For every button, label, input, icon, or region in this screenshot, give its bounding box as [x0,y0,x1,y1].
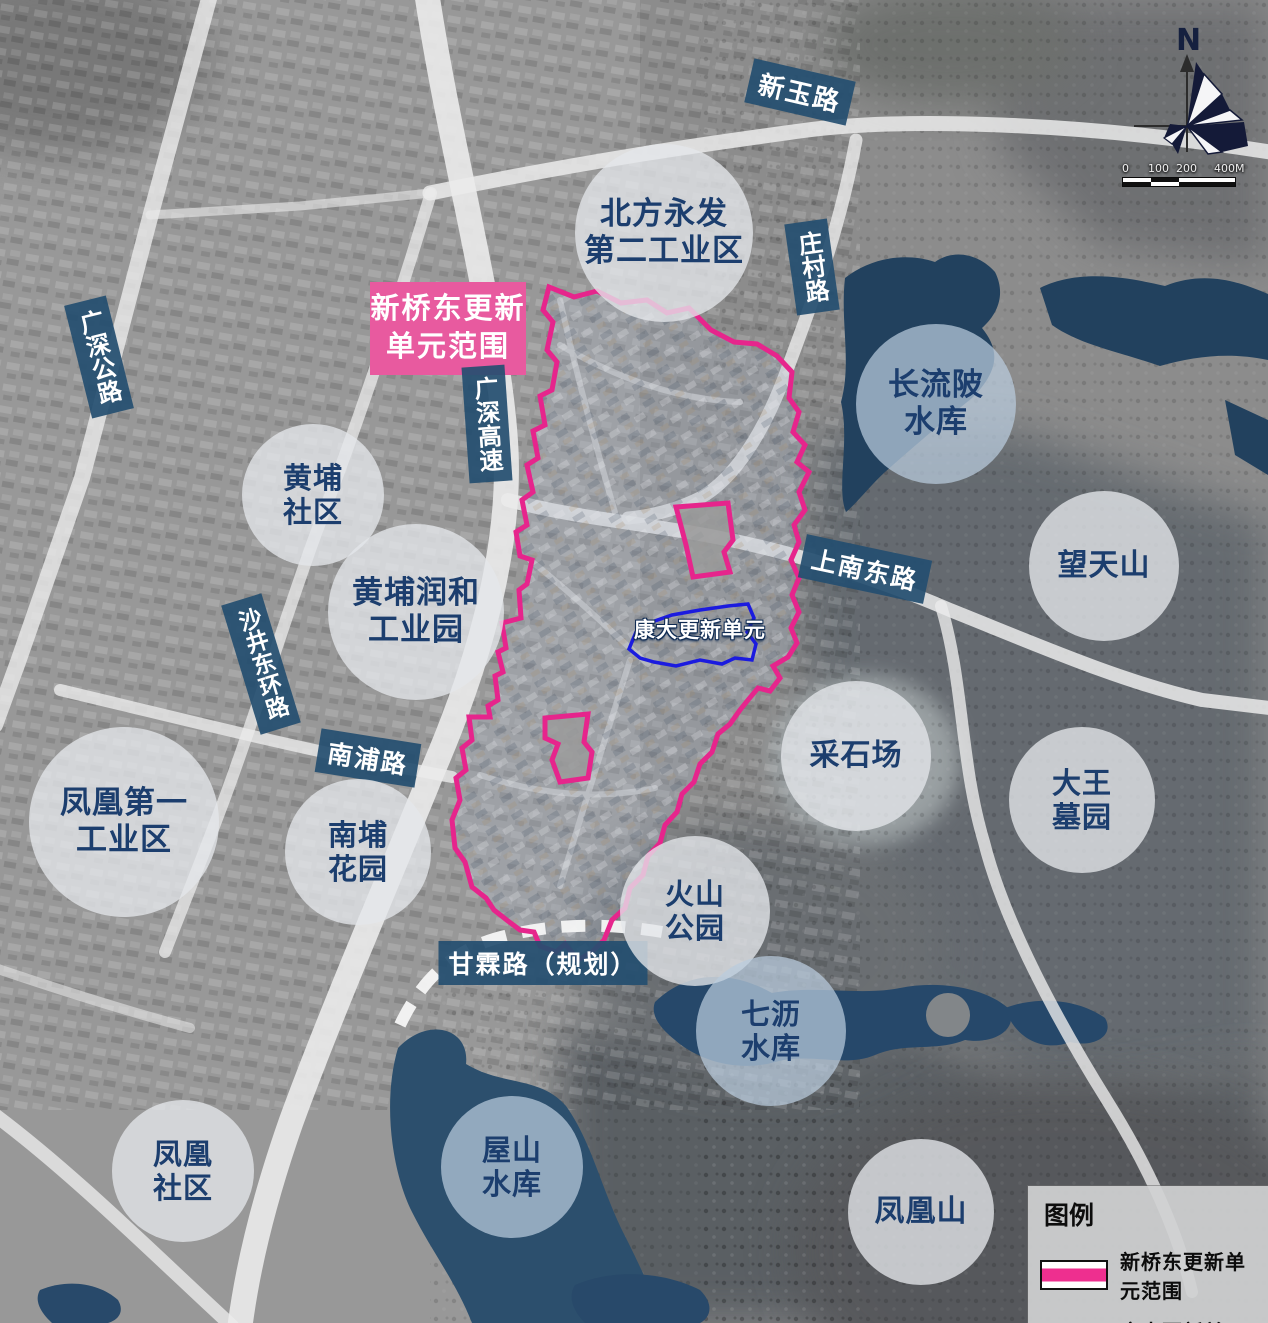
area-label-beifang-yongfa: 北方永发 第二工业区 [575,144,753,322]
legend-item-xinqiaodong: 新桥东更新单元范围 [1040,1246,1256,1304]
scale-tick-0: 0 [1122,162,1129,175]
map-title-line2: 单元范围 [386,329,510,363]
road-label-guangshen-gaosu: 广深高速 [462,365,513,484]
kangda-unit-label: 康大更新单元 [634,614,766,644]
map-title-box: 新桥东更新 单元范围 [370,282,526,375]
legend-item-kangda: 康大更新单元范围 [1040,1316,1256,1323]
area-label-wushan-reservoir: 屋山 水库 [441,1096,583,1238]
area-label-huangpu-runhe: 黄埔润和 工业园 [328,524,504,700]
scale-tick-400: 400M [1214,162,1245,175]
area-label-fenghuang-first-industrial: 凤凰第一 工业区 [29,727,219,917]
area-label-wangtianshan: 望天山 [1029,491,1179,641]
area-label-nanpu-huayuan: 南埔 花园 [285,779,431,925]
area-label-changliupo-reservoir: 长流陂 水库 [856,324,1016,484]
satellite-planning-map: 新桥东更新 单元范围 康大更新单元 新玉路 庄村路 广深公路 广深高速 沙井东环… [0,0,1268,1323]
area-label-caishichang: 采石场 [781,681,931,831]
legend-title: 图例 [1044,1196,1256,1232]
scale-tick-200: 200 [1176,162,1197,175]
north-label: N [1176,23,1201,58]
map-title-line1: 新桥东更新 [370,291,525,325]
north-compass: N [1130,16,1250,164]
scale-tick-100: 100 [1148,162,1169,175]
scale-bar: 0 100 200 400M [1122,162,1242,187]
area-label-fenghuang-shequ: 凤凰 社区 [112,1100,254,1242]
compass-rose [1164,62,1248,154]
legend-label: 康大更新单元范围 [1120,1316,1256,1323]
area-label-dawang-muyuan: 大王 墓园 [1009,727,1155,873]
legend-label: 新桥东更新单元范围 [1120,1246,1256,1304]
legend-panel: 图例 新桥东更新单元范围 康大更新单元范围 [1028,1186,1268,1323]
road-label-ganlin-planned: 甘霖路（规划） [438,941,647,985]
legend-swatch-pink-line [1040,1260,1108,1290]
area-label-qili-reservoir: 七沥 水库 [696,956,846,1106]
area-label-fenghuangshan: 凤凰山 [848,1139,994,1285]
